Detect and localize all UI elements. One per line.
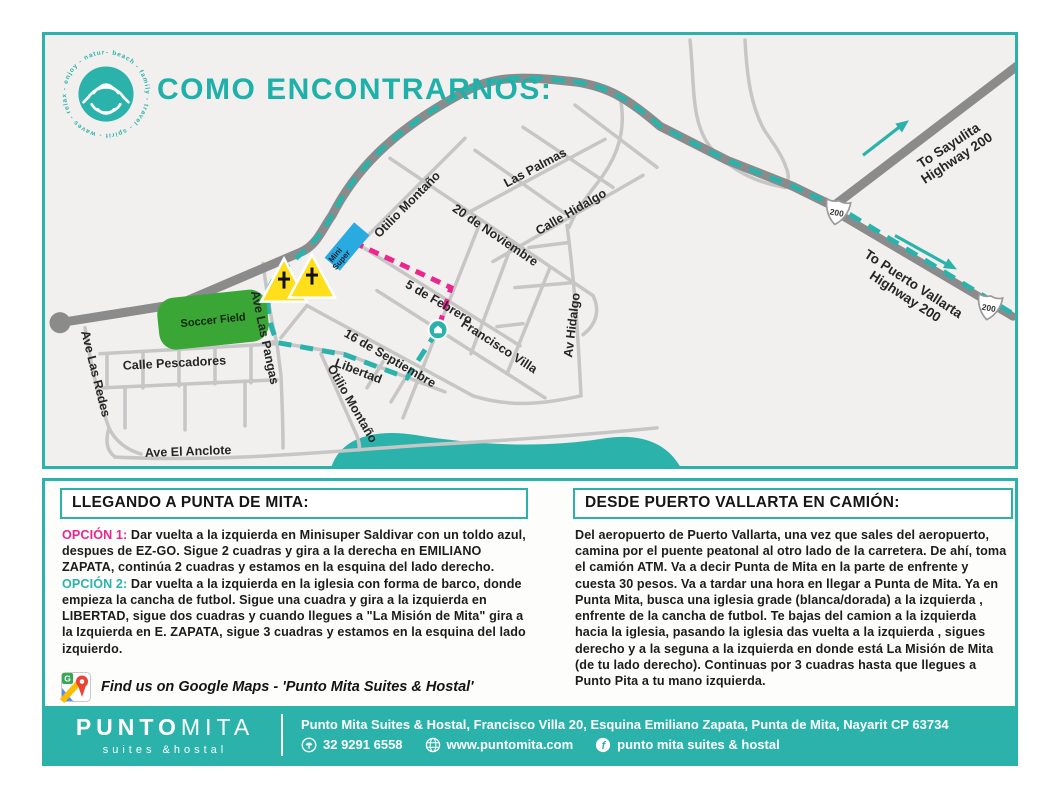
google-maps-link[interactable]: G Find us on Google Maps - 'Punto Mita S… [60,671,474,703]
option-1-paragraph: OPCIÓN 1: Dar vuelta a la izquierda en M… [62,527,526,657]
page-title: COMO ENCONTRARNOS: [157,73,552,107]
road-end-cap [50,312,71,333]
footer-brand: PUNTOMITA suites &hostal [59,714,271,756]
phone-icon [301,737,317,753]
google-maps-icon: G [60,671,92,703]
bus-directions-text: Del aeropuerto de Puerto Vallarta, una v… [575,527,1011,689]
google-maps-text: Find us on Google Maps - 'Punto Mita Sui… [101,679,474,695]
church-icon [289,255,335,298]
street-label-calle-hidalgo: Calle Hidalgo [533,186,609,238]
map-panel: Soccer Field Mini Super [42,32,1018,469]
brand-punto: PUNTO [76,714,181,740]
svg-text:G: G [64,674,71,684]
left-heading-box: LLEGANDO A PUNTA DE MITA: [60,488,528,519]
option-1-text: Dar vuelta a la izquierda en Minisuper S… [62,528,526,574]
footer-divider [281,714,283,756]
street-label-otilio-montano-upper: Otilio Montaño [371,168,443,240]
option-2-text: Dar vuelta a la izquierda en la iglesia … [62,577,526,656]
brand-mita: MITA [181,714,254,740]
right-heading-box: DESDE PUERTO VALLARTA EN CAMIÓN: [573,488,1013,519]
footer-phone: 32 9291 6558 [301,735,403,755]
option-1-label: OPCIÓN 1: [62,528,127,542]
footer-facebook[interactable]: f punto mita suites & hostal [595,735,780,755]
flyer-page: Soccer Field Mini Super [0,0,1060,798]
facebook-icon: f [595,737,611,753]
brand-tagline: suites &hostal [59,744,271,756]
option-2-label: OPCIÓN 2: [62,577,127,591]
footer-website[interactable]: www.puntomita.com [425,735,574,755]
highway-label-sayulita: To Sayulita Highway 200 [910,117,995,187]
directions-panel: LLEGANDO A PUNTA DE MITA: OPCIÓN 1: Dar … [42,478,1018,766]
route-pink-dashed [354,242,451,326]
globe-icon [425,737,441,753]
footer-contact: Punto Mita Suites & Hostal, Francisco Vi… [301,715,949,755]
footer-address: Punto Mita Suites & Hostal, Francisco Vi… [301,715,949,735]
footer-bar: PUNTOMITA suites &hostal Punto Mita Suit… [45,706,1015,763]
destination-marker [429,320,448,339]
bus-directions-column: DESDE PUERTO VALLARTA EN CAMIÓN: Del aer… [573,488,1013,689]
street-label-las-palmas: Las Palmas [502,145,569,190]
punto-mita-wave-logo: - beach - family - travel - spirit - wav… [57,45,155,143]
highway-200-shield: 200 [975,294,1003,322]
arriving-column: LLEGANDO A PUNTA DE MITA: OPCIÓN 1: Dar … [60,488,528,657]
street-label-calle-pescadores: Calle Pescadores [122,353,226,372]
